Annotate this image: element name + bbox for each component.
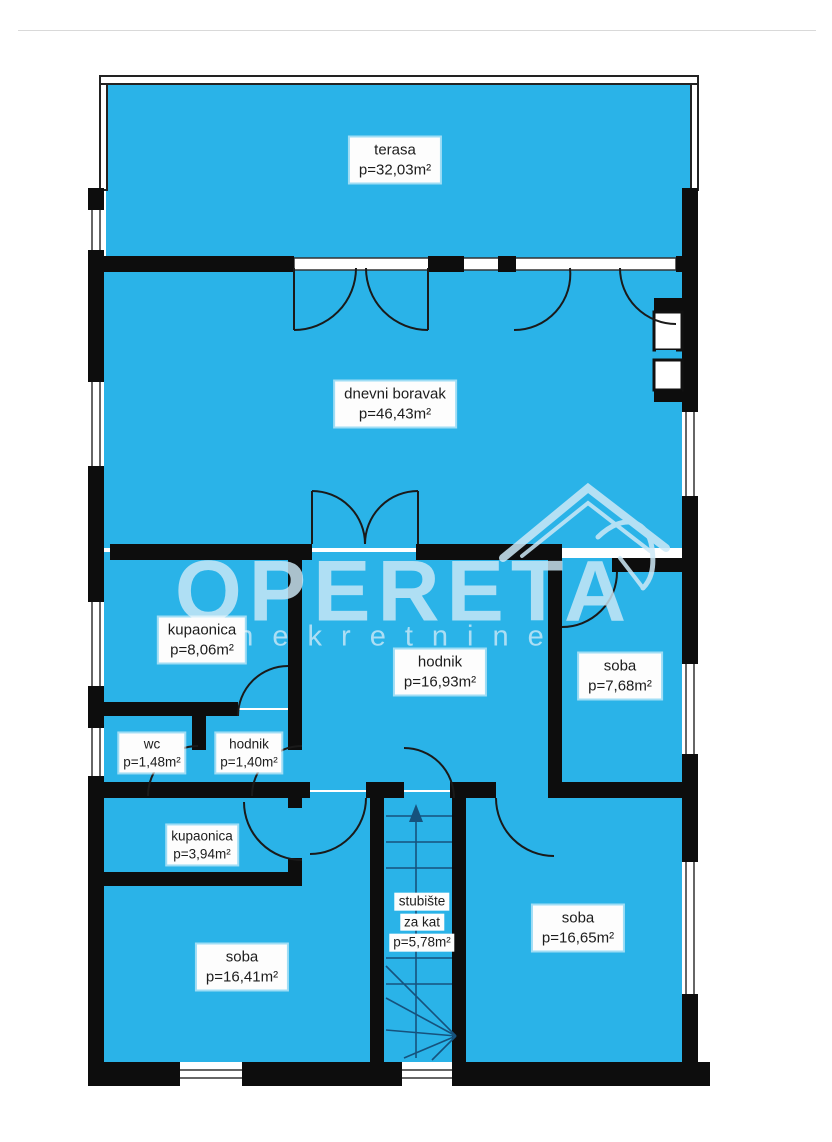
floor-plan-page: OPERETA nekretnine terasa p=32,03m² dnev… — [0, 0, 832, 1142]
wall-soba1-top — [612, 558, 684, 572]
window-left-3 — [88, 598, 104, 690]
room-label-wc: wc p=1,48m² — [119, 733, 184, 772]
niche-box-2 — [654, 360, 682, 390]
room-label-soba-3: soba p=16,65m² — [533, 906, 623, 951]
room-area: p=8,06m² — [168, 640, 236, 660]
room-name: soba — [588, 657, 652, 677]
niche-bottom-stub — [654, 390, 682, 402]
room-area: p=3,94m² — [171, 845, 233, 863]
wall-terrace-post-3 — [676, 256, 694, 272]
room-name: soba — [542, 909, 614, 929]
wall-kupaonica1-bottom — [98, 702, 238, 716]
glass-wall-band — [294, 258, 676, 270]
room-area: p=46,43m² — [344, 404, 446, 424]
room-name-2: za kat — [400, 913, 444, 931]
wall-wc-hodnik-divider — [192, 716, 206, 750]
room-label-kupaonica-1: kupaonica p=8,06m² — [159, 618, 245, 663]
wall-living-bottom-right — [416, 544, 562, 560]
window-right-2 — [682, 660, 698, 758]
wall-terrace-post-2 — [498, 256, 516, 272]
wall-terrace-bottom-left — [104, 256, 294, 272]
chimney-niche — [654, 298, 682, 402]
room-name: hodnik — [220, 735, 277, 753]
wall-kupaonica1-right — [288, 558, 302, 716]
railing-top — [100, 76, 698, 84]
wall-kupaonica2-right-stub — [288, 798, 302, 808]
room-area: p=32,03m² — [359, 160, 431, 180]
room-area: p=7,68m² — [588, 676, 652, 696]
room-name: wc — [123, 735, 180, 753]
room-label-hodnik-mali: hodnik p=1,40m² — [216, 733, 281, 772]
window-bottom-1 — [176, 1062, 246, 1086]
room-label-hodnik-glavni: hodnik p=16,93m² — [395, 650, 485, 695]
room-area: p=16,93m² — [404, 672, 476, 692]
room-area: p=1,48m² — [123, 753, 180, 771]
wall-hodnik-soba1 — [548, 558, 562, 798]
wall-living-bottom-left — [110, 544, 312, 560]
wall-terrace-post-1 — [428, 256, 464, 272]
wall-kupaonica2-bottom — [104, 872, 302, 886]
wall-mid-band-4 — [554, 782, 692, 798]
room-label-kupaonica-2: kupaonica p=3,94m² — [167, 825, 237, 864]
wall-mid-band-1 — [88, 782, 310, 798]
room-name: stubište — [395, 893, 450, 911]
room-area: p=16,41m² — [206, 967, 278, 987]
room-area: p=16,65m² — [542, 928, 614, 948]
railing-left — [100, 84, 107, 190]
room-name: hodnik — [404, 653, 476, 673]
niche-top-stub — [654, 298, 682, 312]
wall-stairs-left — [370, 798, 384, 1062]
window-right-1 — [682, 408, 698, 500]
railing-right — [691, 84, 698, 190]
room-name: kupaonica — [171, 827, 233, 845]
room-label-terasa: terasa p=32,03m² — [350, 138, 440, 183]
room-label-soba-1: soba p=7,68m² — [579, 654, 661, 699]
window-right-3 — [682, 858, 698, 998]
wall-mid-band-2 — [366, 782, 404, 798]
window-bottom-2 — [398, 1062, 456, 1086]
room-label-soba-2: soba p=16,41m² — [197, 945, 287, 990]
window-left-2 — [88, 378, 104, 470]
room-area: p=5,78m² — [389, 934, 454, 952]
room-name: dnevni boravak — [344, 385, 446, 405]
room-label-stubiste: stubište za kat p=5,78m² — [389, 893, 454, 952]
room-name: terasa — [359, 141, 431, 161]
room-area: p=1,40m² — [220, 753, 277, 771]
room-name: kupaonica — [168, 621, 236, 641]
wall-hodnik-mali-right — [288, 716, 302, 750]
room-label-dnevni-boravak: dnevni boravak p=46,43m² — [335, 382, 455, 427]
window-left-4 — [88, 724, 104, 780]
window-left-1 — [88, 206, 104, 254]
niche-box-1 — [654, 312, 682, 350]
wall-mid-band-3 — [450, 782, 496, 798]
room-name: soba — [206, 948, 278, 968]
